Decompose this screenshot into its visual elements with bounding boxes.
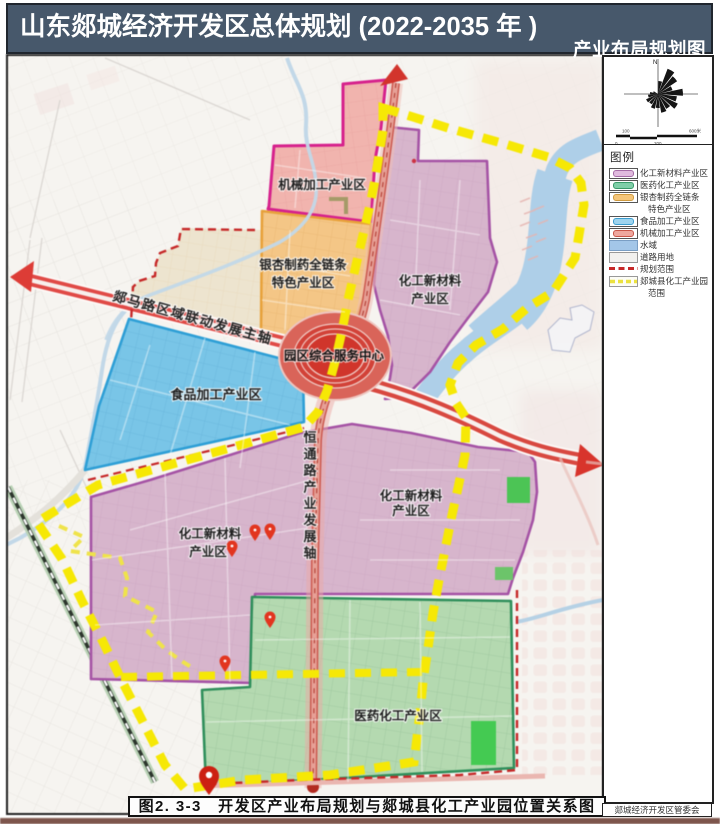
svg-text:产业区: 产业区	[392, 503, 430, 518]
svg-text:N: N	[653, 60, 657, 66]
svg-text:600米: 600米	[689, 128, 702, 135]
svg-text:银杏制药全链条: 银杏制药全链条	[259, 257, 347, 272]
svg-text:产业区: 产业区	[189, 544, 227, 559]
svg-text:医药化工产业区: 医药化工产业区	[354, 708, 442, 723]
svg-text:园区综合服务中心: 园区综合服务中心	[284, 348, 385, 363]
svg-text:食品加工产业区: 食品加工产业区	[170, 387, 261, 402]
svg-text:化工新材料: 化工新材料	[380, 488, 443, 503]
svg-text:特色产业区: 特色产业区	[272, 275, 335, 290]
svg-text:机械加工产业区: 机械加工产业区	[278, 177, 366, 192]
svg-text:产业区: 产业区	[411, 291, 449, 306]
svg-text:恒通路产业发展轴: 恒通路产业发展轴	[302, 430, 317, 561]
svg-text:100: 100	[622, 129, 630, 134]
svg-text:化工新材料: 化工新材料	[399, 273, 462, 288]
svg-text:化工新材料: 化工新材料	[179, 526, 242, 541]
